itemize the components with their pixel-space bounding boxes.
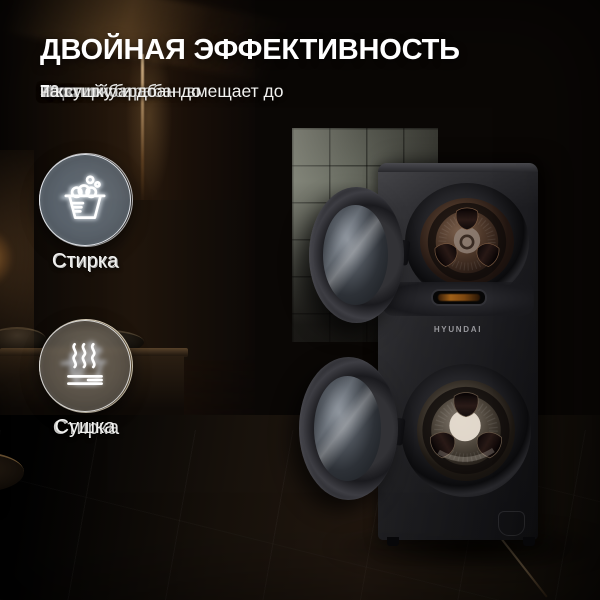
upper-door-open — [309, 187, 404, 323]
feature-label: Сушка — [40, 416, 130, 439]
promo-banner: HYUNDAI — [0, 0, 600, 600]
wall-lamp — [0, 226, 14, 290]
lower-drum-spider — [417, 380, 515, 481]
upper-door-glass — [323, 205, 388, 306]
machine-top-lid — [378, 163, 538, 172]
doorway-light-line — [141, 54, 144, 206]
dry-icon — [56, 337, 114, 395]
feature-circle-wash: Стирка — [39, 154, 131, 246]
machine-foot — [523, 537, 535, 546]
lower-door-open — [299, 357, 398, 500]
page-title: ДВОЙНАЯ ЭФФЕКТИВНОСТЬ — [40, 34, 560, 67]
machine-foot — [387, 537, 399, 546]
lower-door-glass — [314, 376, 381, 482]
feature-label: Стирка — [40, 250, 130, 273]
machine-display-glow — [438, 294, 480, 301]
lower-drum — [417, 380, 515, 481]
upper-drum-spider — [420, 198, 514, 286]
brand-logo: HYUNDAI — [378, 325, 538, 334]
feature-circle-dry: Сушка — [39, 320, 131, 412]
lower-drum-porthole — [401, 364, 531, 497]
filter-hatch — [498, 511, 525, 536]
wash-icon — [56, 171, 114, 229]
upper-drum — [420, 198, 514, 286]
